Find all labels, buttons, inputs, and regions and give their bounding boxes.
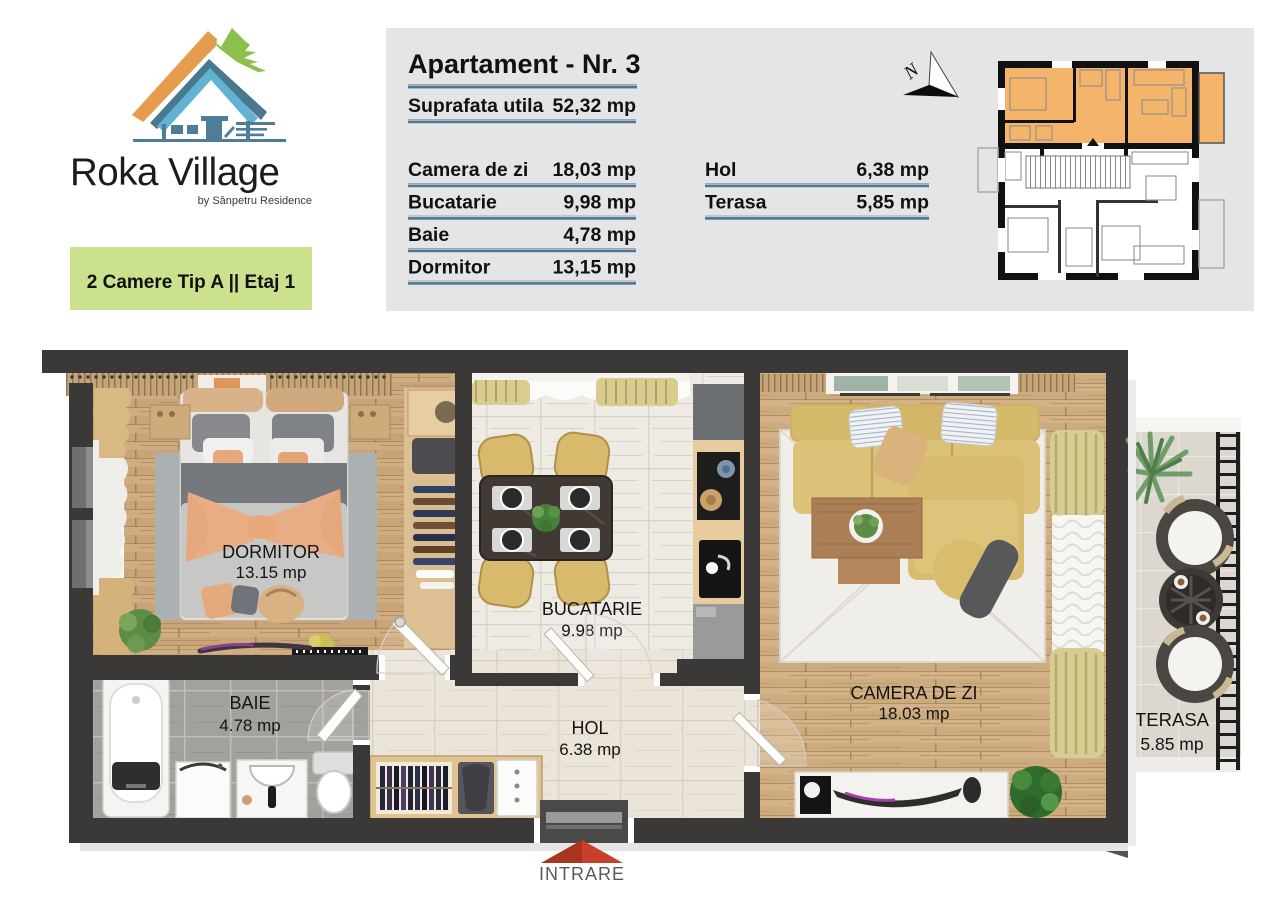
svg-text:18.03 mp: 18.03 mp <box>879 704 950 723</box>
svg-text:2 Camere Tip A || Etaj 1: 2 Camere Tip A || Etaj 1 <box>87 272 296 293</box>
svg-text:18,03 mp: 18,03 mp <box>553 159 637 181</box>
svg-text:HOL: HOL <box>571 718 608 738</box>
svg-text:Apartament - Nr. 3: Apartament - Nr. 3 <box>408 49 641 79</box>
svg-text:13.15 mp: 13.15 mp <box>236 563 307 582</box>
svg-text:Suprafata utila: Suprafata utila <box>408 95 544 117</box>
svg-text:Roka Village: Roka Village <box>70 151 279 194</box>
svg-text:Terasa: Terasa <box>705 192 767 214</box>
svg-text:13,15 mp: 13,15 mp <box>553 257 637 279</box>
svg-text:DORMITOR: DORMITOR <box>222 542 320 562</box>
svg-text:4,78 mp: 4,78 mp <box>563 224 636 246</box>
svg-text:BAIE: BAIE <box>229 693 270 713</box>
svg-text:4.78 mp: 4.78 mp <box>219 716 280 735</box>
svg-text:Baie: Baie <box>408 224 449 246</box>
svg-text:Camera de zi: Camera de zi <box>408 159 528 181</box>
svg-text:6,38 mp: 6,38 mp <box>856 159 929 181</box>
svg-text:TERASA: TERASA <box>1135 709 1210 730</box>
svg-text:5.85 mp: 5.85 mp <box>1140 734 1203 754</box>
svg-text:INTRARE: INTRARE <box>539 864 625 884</box>
svg-text:6.38 mp: 6.38 mp <box>559 740 620 759</box>
svg-text:9,98 mp: 9,98 mp <box>563 192 636 214</box>
svg-text:5,85 mp: 5,85 mp <box>856 192 929 214</box>
svg-text:52,32 mp: 52,32 mp <box>553 95 637 117</box>
svg-text:Hol: Hol <box>705 159 736 181</box>
svg-text:Bucatarie: Bucatarie <box>408 192 497 214</box>
svg-text:Dormitor: Dormitor <box>408 257 491 279</box>
svg-text:CAMERA DE ZI: CAMERA DE ZI <box>850 683 977 703</box>
svg-text:by Sânpetru Residence: by Sânpetru Residence <box>198 195 312 207</box>
